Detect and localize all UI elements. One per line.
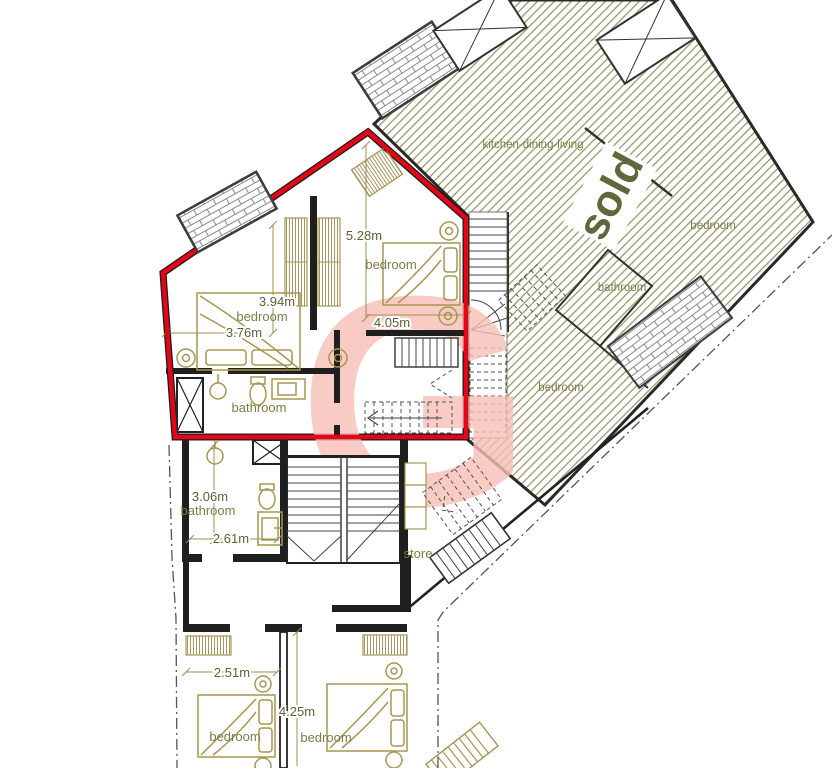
dim-bottom-right-bedroom-depth: 4.25m [279,704,315,719]
dim-lower-bathroom-width: 2.61m [213,531,249,546]
bottom-right-bedroom-furniture [327,635,407,768]
bottom-left-bedroom-furniture [186,636,275,768]
basin [207,448,223,464]
room-label-bathroom-sold: bathroom [598,282,647,294]
floor-plan-drawing: sold G [0,0,832,768]
bedside-table [386,752,402,768]
room-label-bedroom-left: bedroom [236,309,287,324]
main-staircase [287,457,400,563]
dim-lower-bathroom-depth: 3.06m [192,489,228,504]
room-label-bedroom-sold-2: bedroom [538,382,583,394]
dim-right-bedroom-width: 4.05m [374,315,410,330]
dim-left-bedroom-depth: 3.94m [259,294,295,309]
service-shaft [177,378,203,432]
pillow [259,728,272,752]
room-label-bathroom-unit: bathroom [232,400,287,415]
room-label-store: store [404,546,433,561]
bottom-stair-fragment [426,722,498,768]
pillow [259,700,272,724]
floor-plan-page: sold G [0,0,832,768]
dim-right-bedroom-depth: 5.28m [346,228,382,243]
wardrobe [363,635,407,655]
bedside-table [255,758,271,768]
room-label-bedroom-sold-1: bedroom [690,220,735,232]
room-label-bathroom-lower: bathroom [181,503,236,518]
room-label-bedroom-bottom-left: bedroom [209,729,260,744]
pillow [391,690,404,716]
bedside-table [255,676,271,692]
dim-left-bedroom-width: 3.76m [226,325,262,340]
bed [198,695,275,757]
room-label-bedroom-right: bedroom [365,257,416,272]
wardrobe [186,636,231,655]
room-label-bedroom-bottom-right: bedroom [300,730,351,745]
bedside-table [386,663,402,679]
toilet [259,489,275,509]
dim-bottom-left-bedroom-width: 2.51m [214,665,250,680]
room-label-kitchen-dining-living: kitchen-dining-living [483,139,584,151]
pillow [391,720,404,746]
